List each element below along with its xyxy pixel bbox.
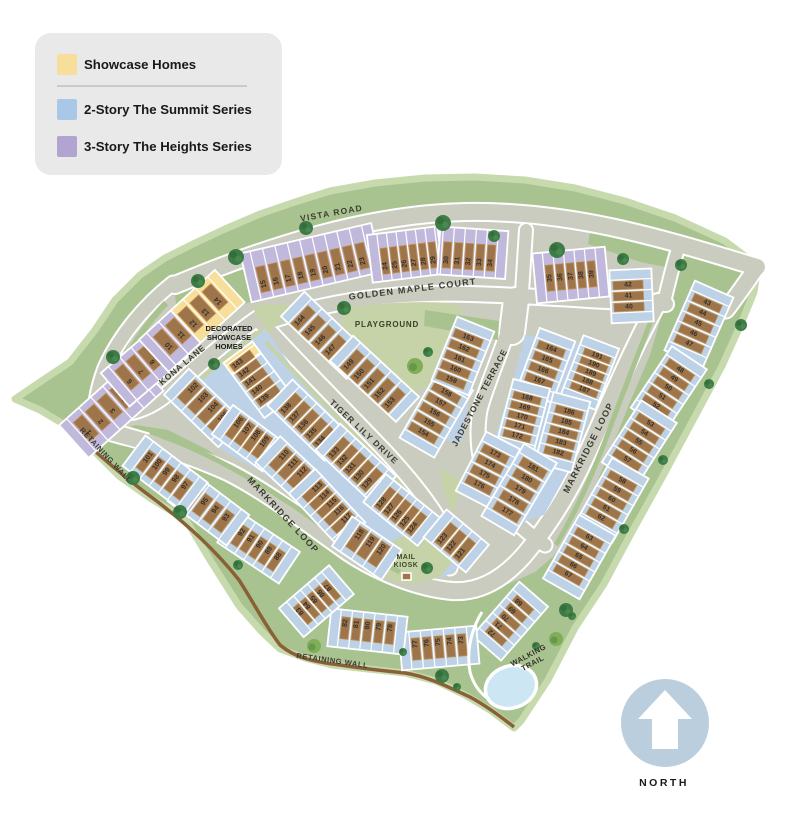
svg-text:HOMES: HOMES bbox=[215, 342, 243, 351]
svg-text:78: 78 bbox=[387, 624, 395, 633]
svg-text:25: 25 bbox=[391, 260, 399, 269]
svg-text:35: 35 bbox=[546, 274, 554, 283]
svg-text:41: 41 bbox=[625, 292, 633, 299]
svg-text:81: 81 bbox=[353, 620, 361, 629]
svg-text:37: 37 bbox=[567, 272, 575, 281]
svg-text:27: 27 bbox=[410, 258, 418, 267]
svg-text:NORTH: NORTH bbox=[639, 777, 689, 789]
svg-text:DECORATED: DECORATED bbox=[206, 324, 254, 333]
svg-text:30: 30 bbox=[443, 256, 451, 264]
svg-text:80: 80 bbox=[364, 621, 372, 630]
svg-text:MAIL: MAIL bbox=[396, 554, 415, 561]
svg-text:PLAYGROUND: PLAYGROUND bbox=[355, 320, 419, 329]
svg-text:28: 28 bbox=[420, 257, 428, 266]
svg-text:36: 36 bbox=[557, 273, 565, 282]
svg-text:79: 79 bbox=[375, 622, 383, 631]
svg-text:SHOWCASE: SHOWCASE bbox=[207, 333, 251, 342]
svg-text:26: 26 bbox=[401, 259, 409, 268]
svg-text:34: 34 bbox=[487, 259, 495, 267]
svg-text:75: 75 bbox=[435, 638, 443, 646]
svg-text:32: 32 bbox=[465, 257, 473, 265]
svg-text:31: 31 bbox=[454, 257, 462, 265]
svg-text:38: 38 bbox=[578, 271, 586, 280]
svg-text:Showcase Homes: Showcase Homes bbox=[84, 57, 196, 72]
svg-text:40: 40 bbox=[625, 303, 633, 310]
svg-text:KIOSK: KIOSK bbox=[394, 562, 419, 569]
svg-text:73: 73 bbox=[458, 636, 466, 644]
svg-text:82: 82 bbox=[342, 619, 350, 628]
svg-text:33: 33 bbox=[476, 258, 484, 266]
svg-text:77: 77 bbox=[412, 640, 420, 648]
svg-text:74: 74 bbox=[446, 637, 454, 645]
svg-text:2-Story The Summit Series: 2-Story The Summit Series bbox=[84, 102, 252, 117]
svg-text:3-Story The Heights Series: 3-Story The Heights Series bbox=[84, 139, 252, 154]
svg-text:76: 76 bbox=[423, 639, 431, 647]
svg-text:42: 42 bbox=[624, 281, 632, 288]
svg-text:24: 24 bbox=[382, 262, 390, 271]
svg-text:39: 39 bbox=[588, 270, 596, 279]
svg-text:29: 29 bbox=[430, 256, 438, 265]
